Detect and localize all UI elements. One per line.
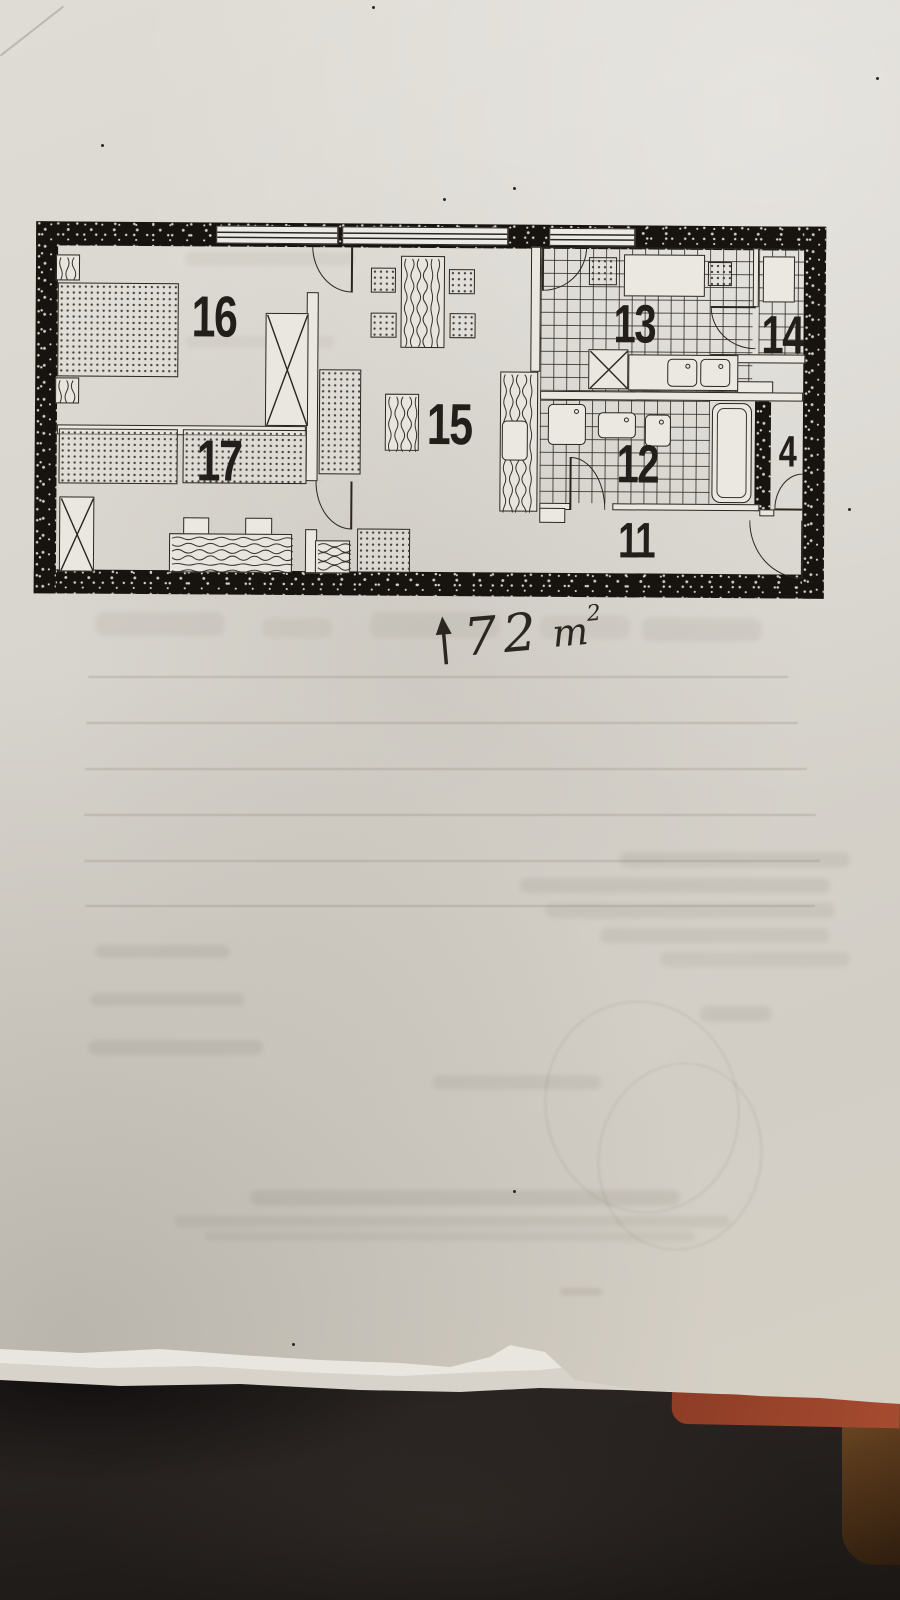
bed <box>58 428 177 484</box>
faint-smudge <box>600 928 830 943</box>
outer-wall <box>754 398 771 511</box>
faint-smudge <box>520 878 830 893</box>
room-label-11: 11 <box>618 515 655 565</box>
photo-of-floor-plan-document: 161715131412114 72 m 2 <box>0 0 900 1600</box>
armchair <box>357 528 410 572</box>
faint-smudge <box>700 1006 772 1022</box>
bathtub <box>711 403 752 503</box>
inner-wall <box>612 503 759 511</box>
magazine-rack <box>315 540 350 573</box>
inner-wall <box>759 509 774 516</box>
room-label-4: 4 <box>779 430 796 474</box>
nightstand <box>55 377 79 403</box>
faint-smudge <box>545 903 835 918</box>
room-label-16: 16 <box>191 288 236 346</box>
window <box>549 228 635 247</box>
toner-speck <box>513 1190 516 1193</box>
kitchen-sink <box>667 359 697 387</box>
faint-smudge <box>262 618 332 638</box>
window <box>216 226 338 245</box>
kitchen-stool <box>589 257 617 285</box>
wardrobe <box>59 496 95 571</box>
faint-smudge <box>620 852 850 867</box>
faint-smudge <box>88 1040 263 1055</box>
faint-smudge <box>560 1288 602 1295</box>
toner-speck <box>876 77 879 80</box>
coffee-table <box>385 394 419 451</box>
wardrobe <box>265 313 309 426</box>
ghost-text-smudges <box>0 0 900 1410</box>
room-label-15: 15 <box>427 396 472 454</box>
bedroom-16-door <box>312 245 352 292</box>
toner-speck <box>372 6 375 9</box>
toner-speck <box>443 198 446 201</box>
room-label-13: 13 <box>613 297 655 351</box>
nightstand <box>56 254 80 280</box>
double-bed <box>57 282 179 377</box>
faint-line <box>88 676 788 678</box>
sofa <box>319 369 362 474</box>
kitchen-stool <box>708 262 732 286</box>
area-exponent: 2 <box>586 603 602 626</box>
outer-wall <box>34 221 59 593</box>
kitchen-sink <box>700 359 730 387</box>
kitchen-door <box>543 247 587 291</box>
kitchen-table <box>624 254 705 297</box>
outer-wall <box>802 227 827 599</box>
dining-chair <box>450 313 476 338</box>
floor-plan: 161715131412114 <box>34 221 827 599</box>
area-value: 72 <box>462 606 544 665</box>
entrance-door <box>749 520 802 578</box>
faint-smudge <box>205 1232 695 1241</box>
toner-speck <box>101 144 104 147</box>
window <box>342 226 508 245</box>
toner-speck <box>848 508 851 511</box>
toner-speck <box>292 1343 295 1346</box>
desk <box>169 533 292 573</box>
area-unit: m <box>551 612 590 653</box>
wc-door <box>774 473 802 509</box>
inner-wall <box>753 248 759 307</box>
cabinet-chair <box>502 421 528 461</box>
room-label-14: 14 <box>761 308 803 362</box>
room-label-17: 17 <box>196 432 241 490</box>
dining-chair <box>449 269 475 294</box>
shelf <box>763 256 795 302</box>
threshold-cabinet <box>539 508 565 523</box>
shelf <box>737 381 773 393</box>
room-label-12: 12 <box>616 437 658 491</box>
bedroom-17-door <box>315 481 351 529</box>
faint-smudge <box>90 993 245 1006</box>
inner-wall <box>530 247 541 372</box>
up-arrow-icon <box>430 613 458 667</box>
faint-line <box>85 768 807 770</box>
faint-smudge <box>95 945 230 958</box>
dining-table <box>400 256 445 348</box>
faint-smudge <box>642 618 762 642</box>
stove <box>588 349 628 389</box>
faint-line <box>86 722 798 724</box>
pantry-door <box>710 307 755 349</box>
bathroom-sink <box>548 404 586 445</box>
dining-chair <box>371 268 396 293</box>
bathroom-door <box>570 457 605 510</box>
faint-smudge <box>660 952 850 967</box>
faint-line <box>84 814 816 816</box>
toner-speck <box>513 187 516 190</box>
faint-smudge <box>95 612 225 636</box>
dining-chair <box>371 313 397 338</box>
document-paper: 161715131412114 72 m 2 <box>0 0 900 1410</box>
